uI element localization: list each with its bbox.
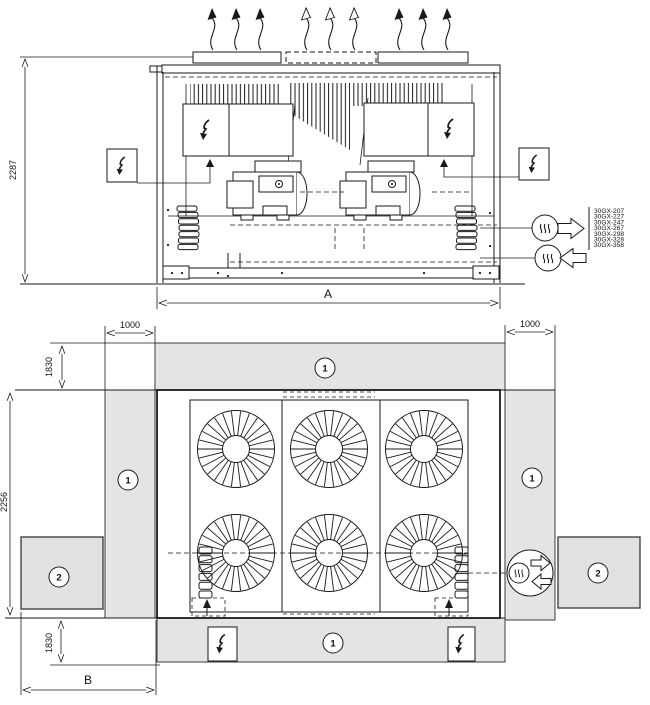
hidden-piping	[230, 225, 497, 262]
zone-label: 1	[322, 364, 328, 375]
model-number: 30GX-358	[594, 242, 624, 249]
drawing-page: 30GX-207 30GX-227 30GX-247 30GX-267 30GX…	[0, 0, 650, 700]
control-box-right	[364, 103, 474, 156]
dimension-clearance-right: 1000	[505, 319, 555, 390]
dim-label-height: 2287	[8, 160, 18, 180]
control-box-left	[183, 104, 293, 156]
zone-label: 1	[529, 474, 535, 485]
dim-label: 1830	[44, 357, 54, 377]
air-discharge-arrows	[208, 8, 452, 50]
model-list: 30GX-207 30GX-227 30GX-247 30GX-267 30GX…	[589, 207, 624, 250]
air-arrow-icon	[395, 8, 404, 50]
clearance-zone-left	[105, 390, 155, 618]
dimension-A: A	[157, 287, 500, 309]
zone-badge-top: 1	[315, 358, 335, 378]
zone-label: 1	[330, 639, 336, 650]
zone-label: 2	[595, 569, 600, 580]
dimension-clearance-bottom: 1830	[44, 621, 160, 665]
zone-label: 2	[56, 573, 61, 584]
elevation-view: 30GX-207 30GX-227 30GX-247 30GX-267 30GX…	[8, 8, 624, 309]
water-connection-plan-icon	[507, 550, 553, 596]
air-arrow-icon	[443, 8, 452, 50]
leader-arrow	[440, 159, 448, 167]
louver-left	[177, 206, 199, 250]
louver-right	[455, 206, 477, 250]
zone-badge-bottom: 1	[323, 633, 343, 653]
plan-view: 1 1 1 1 2 2 1000	[0, 319, 640, 695]
fan-plenums	[150, 52, 500, 73]
service-badge-right: 2	[588, 563, 608, 583]
dimension-height: 2287	[8, 57, 193, 282]
zone-badge-left: 1	[118, 470, 138, 490]
zone-badge-right: 1	[522, 468, 542, 488]
dim-label-A: A	[324, 287, 332, 301]
compressor-left	[227, 161, 307, 220]
air-arrow-icon	[232, 8, 241, 50]
base-rail	[163, 253, 500, 279]
compressor-right	[340, 161, 420, 220]
air-arrow-icon	[350, 8, 359, 50]
air-arrow-icon	[256, 8, 265, 50]
water-connections	[480, 215, 586, 271]
service-badge-left: 2	[49, 567, 69, 587]
electrical-box-bottom-left	[208, 627, 237, 661]
zone-label: 1	[125, 476, 131, 487]
water-outlet-icon	[532, 215, 584, 241]
water-inlet-icon	[535, 245, 586, 271]
electrical-box-bottom-right	[448, 627, 475, 661]
dim-label-B: B	[84, 673, 92, 687]
dim-label: 2256	[0, 492, 9, 512]
dim-label: 1830	[44, 633, 54, 653]
air-arrow-icon	[326, 8, 335, 50]
air-arrow-icon	[302, 8, 311, 50]
dimension-B: B	[21, 612, 156, 695]
dimensional-drawing: 30GX-207 30GX-227 30GX-247 30GX-267 30GX…	[0, 0, 650, 700]
dimension-clearance-left: 1000	[105, 320, 155, 390]
air-arrow-icon	[419, 8, 428, 50]
leader-arrow	[206, 159, 214, 167]
dim-label: 1000	[120, 320, 140, 330]
air-arrow-icon	[208, 8, 217, 50]
dim-label: 1000	[520, 319, 540, 329]
